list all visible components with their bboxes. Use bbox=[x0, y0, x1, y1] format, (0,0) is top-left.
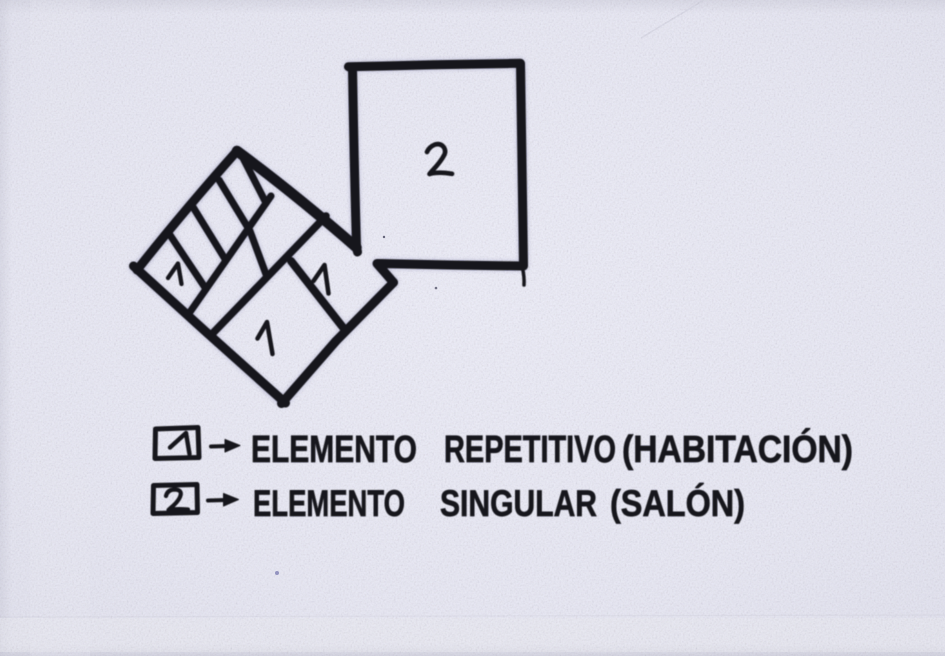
svg-text:REPETITIVO: REPETITIVO bbox=[444, 429, 616, 471]
svg-text:(SALÓN): (SALÓN) bbox=[610, 482, 745, 524]
svg-text:SINGULAR: SINGULAR bbox=[440, 483, 597, 524]
svg-text:(HABITACIÓN): (HABITACIÓN) bbox=[622, 427, 853, 471]
svg-text:ELEMENTO: ELEMENTO bbox=[253, 483, 405, 524]
svg-text:ELEMENTO: ELEMENTO bbox=[251, 429, 417, 471]
